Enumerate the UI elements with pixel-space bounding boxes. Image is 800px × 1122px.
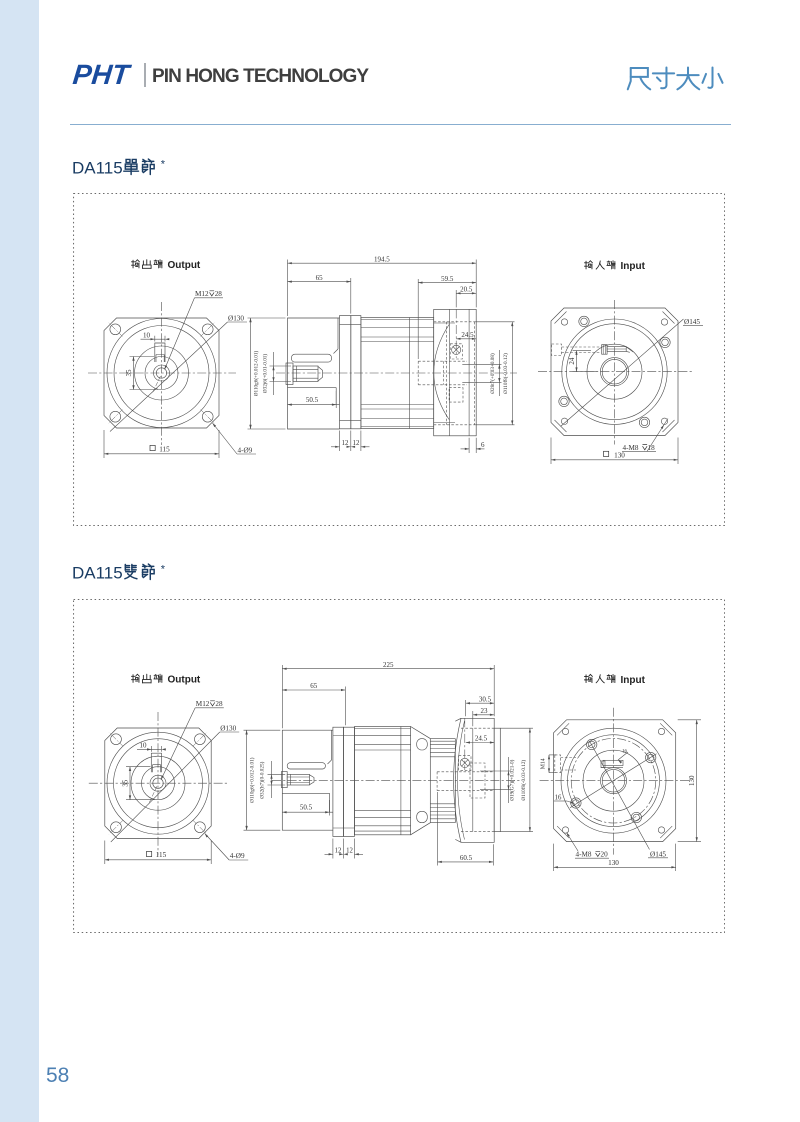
svg-text:20: 20 [601, 851, 609, 859]
svg-text:24.5: 24.5 [475, 735, 488, 743]
svg-text:28: 28 [215, 700, 223, 708]
svg-text:4-Ø9: 4-Ø9 [230, 852, 245, 860]
svg-text:65: 65 [310, 682, 318, 690]
svg-text:12: 12 [346, 848, 353, 855]
svg-text:Ø110g6(+0.012-0.01): Ø110g6(+0.012-0.01) [253, 351, 260, 397]
svg-text:Ø110f8(-0.03-0.12): Ø110f8(-0.03-0.12) [502, 353, 509, 394]
svg-text:Output: Output [168, 260, 201, 271]
svg-text:225: 225 [383, 661, 394, 669]
svg-text:Output: Output [168, 675, 201, 686]
svg-text:115: 115 [156, 851, 167, 859]
svg-text:10: 10 [143, 332, 151, 340]
svg-text:M14: M14 [541, 758, 547, 769]
svg-text:Ø130: Ø130 [220, 725, 236, 733]
svg-text:Ø110f8(-0.03-0.12): Ø110f8(-0.03-0.12) [520, 760, 527, 801]
svg-text:Input: Input [621, 261, 646, 272]
svg-text:30.5: 30.5 [479, 695, 492, 703]
svg-text:16: 16 [555, 794, 562, 801]
svg-text:M12: M12 [196, 700, 210, 708]
svg-text:28: 28 [215, 290, 223, 298]
svg-text:23: 23 [481, 707, 489, 715]
svg-text:Ø28t7(+0.03+0.08): Ø28t7(+0.03+0.08) [489, 353, 496, 394]
svg-text:10: 10 [140, 742, 148, 750]
svg-text:16: 16 [622, 750, 627, 755]
svg-text:Ø19(G7)(+0.021-0): Ø19(G7)(+0.021-0) [509, 759, 516, 800]
svg-text:4-Ø9: 4-Ø9 [238, 446, 253, 454]
svg-text:65: 65 [316, 274, 324, 282]
svg-text:194.5: 194.5 [374, 255, 390, 263]
svg-text:12: 12 [342, 440, 349, 447]
svg-text:60.5: 60.5 [460, 854, 473, 862]
svg-text:Ø32(h7)(0-0.025): Ø32(h7)(0-0.025) [259, 761, 266, 798]
svg-text:12: 12 [353, 440, 360, 447]
svg-text:24.5: 24.5 [461, 331, 474, 339]
svg-text:Input: Input [621, 675, 646, 686]
svg-text:Ø110g6(+0.012-0.01): Ø110g6(+0.012-0.01) [249, 757, 256, 803]
svg-text:Ø130: Ø130 [228, 315, 244, 323]
svg-text:Ø145: Ø145 [650, 850, 666, 858]
svg-text:4-M8: 4-M8 [623, 444, 639, 452]
svg-text:Ø32j6(+0.01-0.01): Ø32j6(+0.01-0.01) [262, 354, 269, 394]
svg-text:50.5: 50.5 [306, 396, 319, 404]
svg-text:130: 130 [608, 859, 619, 867]
svg-text:115: 115 [159, 445, 170, 453]
svg-text:35: 35 [122, 779, 130, 787]
svg-text:59.5: 59.5 [441, 275, 454, 283]
svg-text:24: 24 [568, 357, 576, 365]
svg-text:4-M8: 4-M8 [576, 851, 592, 859]
svg-text:35: 35 [125, 369, 133, 377]
svg-text:12: 12 [335, 848, 342, 855]
svg-text:6: 6 [481, 441, 485, 449]
svg-text:50.5: 50.5 [300, 803, 313, 811]
svg-text:M12: M12 [195, 290, 209, 298]
svg-text:Ø145: Ø145 [684, 318, 700, 326]
svg-text:20.5: 20.5 [460, 286, 473, 294]
svg-text:130: 130 [614, 452, 625, 460]
